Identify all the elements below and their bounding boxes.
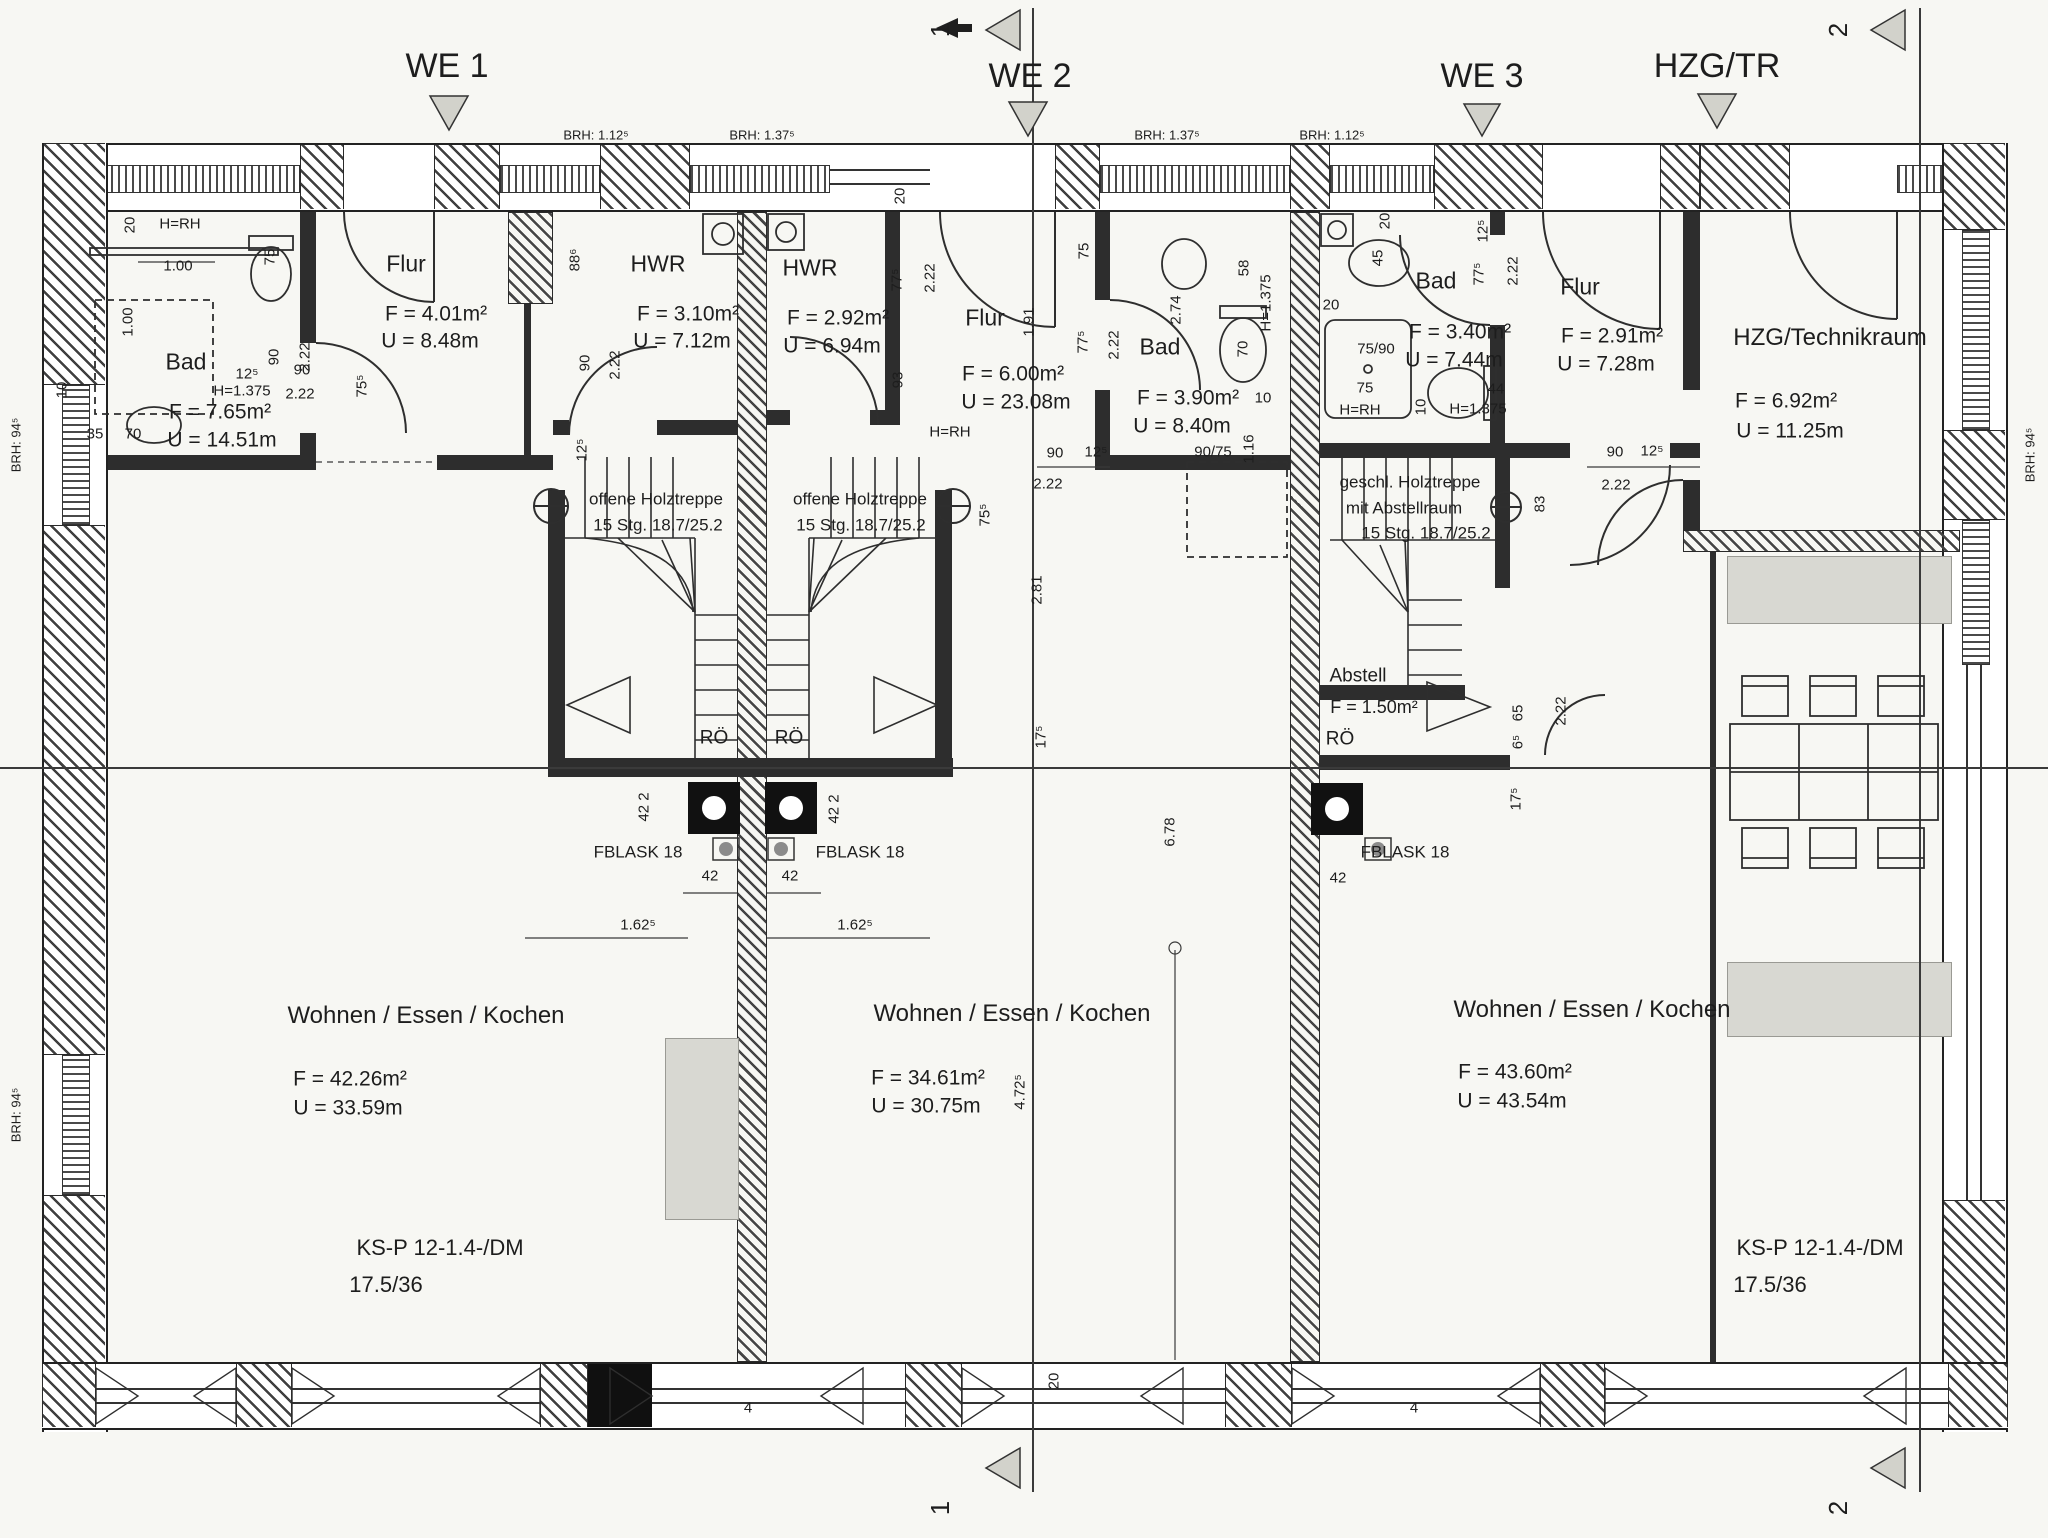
annotation: RÖ xyxy=(775,729,804,748)
dimension: 77⁵ xyxy=(1472,263,1487,286)
we3-flur-perimeter: U = 7.28m xyxy=(1557,354,1654,375)
dimension: 20 xyxy=(1047,1373,1062,1390)
dimension: 10 xyxy=(1255,391,1272,406)
dimension: 70 xyxy=(1236,341,1251,358)
we1-bad-name: Bad xyxy=(166,351,207,374)
brh-sill-height-label: BRH: 1.37⁵ xyxy=(1134,129,1199,142)
we1-wohnen-name: Wohnen / Essen / Kochen xyxy=(287,1004,564,1028)
we3-wohnen-perimeter: U = 43.54m xyxy=(1457,1091,1566,1112)
dimension: 17⁵ xyxy=(1034,726,1049,749)
drawing-layer xyxy=(0,0,2048,1538)
dining-table-chairs xyxy=(1730,676,1938,868)
we3-bad-name: Bad xyxy=(1416,270,1457,293)
section-marker-number: 2 xyxy=(1825,23,1851,37)
dimension: 1.62⁵ xyxy=(837,918,872,933)
section-marker-number: 1 xyxy=(927,23,953,37)
dimension: 12⁵ xyxy=(575,439,590,462)
dimension: 75 xyxy=(1077,243,1092,260)
annotation: RÖ xyxy=(1326,730,1355,749)
brh-sill-height-label: BRH: 1.37⁵ xyxy=(729,129,794,142)
dimension: 2.22 xyxy=(608,350,623,379)
we3-flur-area: F = 2.91m² xyxy=(1561,326,1663,347)
dimension: 42 xyxy=(1330,871,1347,886)
unit-header: HZG/TR xyxy=(1654,49,1781,83)
dimension-lines xyxy=(138,262,1700,1360)
dimension: 1.16 xyxy=(1242,434,1257,463)
dimension: 2.22 xyxy=(285,387,314,402)
unit-header: WE 3 xyxy=(1440,59,1523,93)
annotation: RÖ xyxy=(700,729,729,748)
brh-sill-height-label: BRH: 94⁵ xyxy=(2024,428,2037,483)
section-marker-number: 1 xyxy=(927,1501,953,1515)
we3-abstell-area: F = 1.50m² xyxy=(1330,698,1418,716)
annotation: FBLASK 18 xyxy=(816,844,905,861)
bottom-door-swing-marks xyxy=(96,1368,1906,1424)
we2-bad-perimeter: U = 8.40m xyxy=(1133,416,1230,437)
dimension: 90/75 xyxy=(1194,445,1232,460)
dimension: 1.62⁵ xyxy=(620,918,655,933)
we1-wohnen-area: F = 42.26m² xyxy=(293,1069,407,1090)
annotation: 17.5/36 xyxy=(1733,1274,1806,1296)
dimension: 12⁵ xyxy=(1085,445,1108,460)
dimension: 35 xyxy=(87,427,104,442)
dimension: 6.78 xyxy=(1163,817,1178,846)
dimension: 93 xyxy=(891,372,906,389)
dimension: 42 2 xyxy=(827,794,842,823)
dimension: 2.22 xyxy=(1601,478,1630,493)
dimension: 42 xyxy=(782,869,799,884)
annotation: H=1.375 xyxy=(213,384,270,399)
stair-note: geschl. Holztreppe xyxy=(1340,474,1481,491)
dimension: 20 xyxy=(893,188,908,205)
we2-hwr-area: F = 2.92m² xyxy=(787,308,889,329)
dimension: 17⁵ xyxy=(1509,788,1524,811)
annotation: H=RH xyxy=(1339,403,1380,418)
brh-sill-height-label: BRH: 94⁵ xyxy=(10,1088,23,1143)
dimension: 2.81 xyxy=(1030,575,1045,604)
dimension: 75/90 xyxy=(1357,342,1395,357)
dimension: 75⁵ xyxy=(355,375,370,398)
dimension: 4 xyxy=(1410,1401,1418,1416)
we2-bad-area: F = 3.90m² xyxy=(1137,388,1239,409)
dimension: 12⁵ xyxy=(1476,220,1491,243)
stair-note: 15 Stg. 18.7/25.2 xyxy=(593,517,723,534)
dimension: 20 xyxy=(123,217,138,234)
we2-flur-area: F = 6.00m² xyxy=(962,364,1064,385)
dimension: 90 xyxy=(267,349,282,366)
we3-flur-name: Flur xyxy=(1560,276,1600,299)
dimension: 90 xyxy=(1607,445,1624,460)
dimension: 2.74 xyxy=(1169,295,1184,324)
chimneys xyxy=(688,782,1391,860)
brh-sill-height-label: BRH: 1.12⁵ xyxy=(1299,129,1364,142)
dimension: 90 xyxy=(294,363,311,378)
floor-plan-canvas: WE 1WE 2WE 3HZG/TR1122BRH: 1.12⁵BRH: 1.3… xyxy=(0,0,2048,1538)
dimension: 2.22 xyxy=(1107,330,1122,359)
dimension: 77⁵ xyxy=(890,269,905,292)
dimension: 2.22 xyxy=(1033,477,1062,492)
we3-bad-perimeter: U = 7.44m xyxy=(1405,350,1502,371)
stair-note: mit Abstellraum xyxy=(1346,500,1462,517)
we1-flur-perimeter: U = 8.48m xyxy=(381,331,478,352)
we1-hwr-perimeter: U = 7.12m xyxy=(633,331,730,352)
we3-abstell-name: Abstell xyxy=(1329,667,1386,686)
annotation: H=RH xyxy=(159,217,200,232)
we1-flur-area: F = 4.01m² xyxy=(385,304,487,325)
dimension: 4 xyxy=(744,1401,752,1416)
dimension: 77⁵ xyxy=(1076,331,1091,354)
dimension: 83 xyxy=(1533,496,1548,513)
we2-bad-name: Bad xyxy=(1140,336,1181,359)
annotation: KS-P 12-1.4-/DM xyxy=(356,1237,523,1259)
annotation: 17.5/36 xyxy=(349,1274,422,1296)
we3-wohnen-name: Wohnen / Essen / Kochen xyxy=(1453,998,1730,1022)
we2-hwr-name: HWR xyxy=(783,257,838,280)
we3-bad-area: F = 3.40m² xyxy=(1409,322,1511,343)
annotation: H=1.375 xyxy=(1449,402,1506,417)
dimension: 1.00 xyxy=(121,307,136,336)
dimension: 88⁶ xyxy=(568,249,583,272)
dimension: 1.91 xyxy=(1022,307,1037,336)
dimension: 45 xyxy=(1371,250,1386,267)
dimension: 65 xyxy=(1511,705,1526,722)
we1-bad-perimeter: U = 14.51m xyxy=(167,430,276,451)
dimension: 75 xyxy=(263,249,278,266)
unit-marker-triangles xyxy=(430,10,1905,1488)
annotation: FBLASK 18 xyxy=(594,844,683,861)
dimension: 20 xyxy=(1378,213,1393,230)
dimension: 90 xyxy=(1047,446,1064,461)
brh-sill-height-label: BRH: 94⁵ xyxy=(10,418,23,473)
unit-header: WE 2 xyxy=(988,59,1071,93)
dimension: 75⁵ xyxy=(978,504,993,527)
dimension: 75 xyxy=(1357,381,1374,396)
dimension: 70 xyxy=(125,427,142,442)
annotation: FBLASK 18 xyxy=(1361,844,1450,861)
stair-note: 15 Stg. 18.7/25.2 xyxy=(1361,525,1491,542)
we2-flur-name: Flur xyxy=(965,307,1005,330)
we3-wohnen-area: F = 43.60m² xyxy=(1458,1062,1572,1083)
dimension: 10 xyxy=(1414,399,1429,416)
stair-note: 15 Stg. 18.7/25.2 xyxy=(796,517,926,534)
stair-note: offene Holztreppe xyxy=(589,491,723,508)
stair-note: offene Holztreppe xyxy=(793,491,927,508)
we2-wohnen-area: F = 34.61m² xyxy=(871,1068,985,1089)
hzg-technikraum-perimeter: U = 11.25m xyxy=(1736,421,1844,442)
dimension: 42 xyxy=(702,869,719,884)
unit-header: WE 1 xyxy=(405,49,488,83)
we1-flur-name: Flur xyxy=(386,253,426,276)
dimension: 42 2 xyxy=(637,792,652,821)
we1-bad-area: F = 7.65m² xyxy=(169,402,271,423)
we1-hwr-name: HWR xyxy=(631,253,686,276)
dimension: 90 xyxy=(578,355,593,372)
annotation: H=1.375 xyxy=(1259,274,1274,331)
hzg-technikraum-area: F = 6.92m² xyxy=(1735,391,1837,412)
dimension: 2.22 xyxy=(1506,256,1521,285)
dimension: 2.22 xyxy=(1554,696,1569,725)
we2-flur-perimeter: U = 23.08m xyxy=(961,392,1070,413)
dimension: 6⁵ xyxy=(1511,735,1526,750)
dimension: 20 xyxy=(1323,298,1340,313)
we2-wohnen-name: Wohnen / Essen / Kochen xyxy=(873,1002,1150,1026)
we1-wohnen-perimeter: U = 33.59m xyxy=(293,1098,402,1119)
dimension: 10 xyxy=(55,382,70,399)
dimension: 2.22 xyxy=(923,263,938,292)
we2-hwr-perimeter: U = 6.94m xyxy=(783,336,880,357)
dimension: 12⁵ xyxy=(236,367,259,382)
hzg-technikraum-name: HZG/Technikraum xyxy=(1733,326,1926,350)
we1-hwr-area: F = 3.10m² xyxy=(637,304,739,325)
brh-sill-height-label: BRH: 1.12⁵ xyxy=(563,129,628,142)
section-marker-number: 2 xyxy=(1825,1501,1851,1515)
door-arcs xyxy=(316,212,1897,755)
we2-wohnen-perimeter: U = 30.75m xyxy=(871,1096,980,1117)
dimension: 58 xyxy=(1237,260,1252,277)
annotation: KS-P 12-1.4-/DM xyxy=(1736,1237,1903,1259)
dimension: 12⁵ xyxy=(1641,444,1664,459)
dimension: 4.72⁵ xyxy=(1013,1074,1028,1109)
dimension: 1.00 xyxy=(163,259,192,274)
dimension: 44 xyxy=(1488,382,1505,397)
annotation: H=RH xyxy=(929,425,970,440)
